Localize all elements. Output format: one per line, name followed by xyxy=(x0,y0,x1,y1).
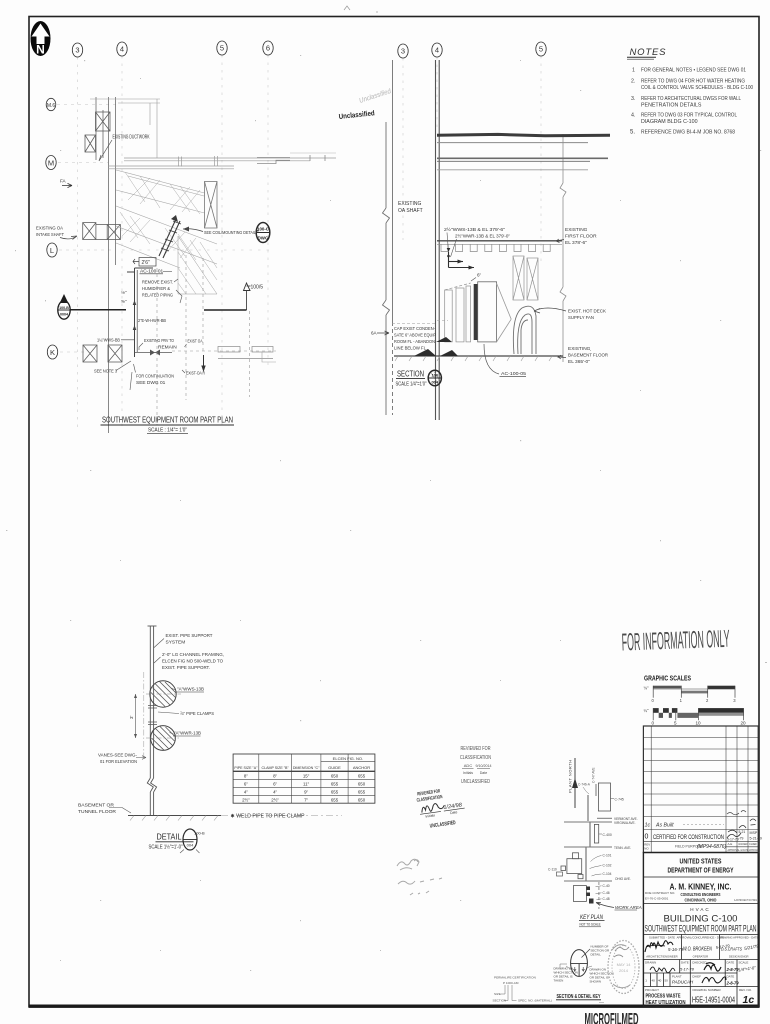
svg-text:A-E: A-E xyxy=(728,842,733,846)
svg-text:SCALE 1½"=1'-0": SCALE 1½"=1'-0" xyxy=(149,844,183,851)
svg-text:650: 650 xyxy=(331,774,339,779)
svg-text:PADUCAH: PADUCAH xyxy=(672,980,694,985)
svg-text:PLANT NORTH: PLANT NORTH xyxy=(568,759,573,793)
svg-text:40: 40 xyxy=(652,979,656,983)
svg-text:100/5: 100/5 xyxy=(251,285,264,291)
svg-text:3: 3 xyxy=(75,46,79,55)
svg-text:50: 50 xyxy=(665,979,669,983)
svg-text:SYSTEM: SYSTEM xyxy=(166,640,186,646)
svg-text:PERMALIFE CERTIFICATION: PERMALIFE CERTIFICATION xyxy=(494,976,536,980)
svg-text:DRAWING APPROVED - DATE: DRAWING APPROVED - DATE xyxy=(719,936,758,940)
svg-text:K: K xyxy=(50,348,55,357)
svg-text:CONSULTING ENGINEERS: CONSULTING ENGINEERS xyxy=(681,892,721,897)
svg-text:655: 655 xyxy=(331,790,339,795)
svg-text:5.: 5. xyxy=(630,129,635,135)
svg-text:NOTES: NOTES xyxy=(630,47,667,58)
svg-text:ADC: ADC xyxy=(464,763,473,768)
svg-text:REMAIN: REMAIN xyxy=(158,345,177,351)
svg-text:REFER TO DWG 03 FOR TYPICAL CO: REFER TO DWG 03 FOR TYPICAL CONTROL xyxy=(641,113,737,119)
svg-text:C-40: C-40 xyxy=(603,884,610,888)
svg-text:⅛": ⅛" xyxy=(121,290,127,295)
svg-text:DEPARTMENT OF ENERGY: DEPARTMENT OF ENERGY xyxy=(668,866,734,875)
svg-text:40: 40 xyxy=(658,979,662,983)
svg-text:C-48: C-48 xyxy=(603,897,610,901)
svg-text:SCALE 1/4"=1'0": SCALE 1/4"=1'0" xyxy=(396,381,427,387)
svg-text:PROCESS WASTE: PROCESS WASTE xyxy=(646,994,681,1000)
svg-text:HEAT UTILIZATION: HEAT UTILIZATION xyxy=(646,1000,686,1006)
svg-text:C-110: C-110 xyxy=(548,868,557,872)
svg-text:-79: -79 xyxy=(739,837,744,841)
svg-text:SIZE: SIZE xyxy=(494,992,501,996)
svg-text:655: 655 xyxy=(358,774,366,779)
svg-text:EY-76-C-05-0001: EY-76-C-05-0001 xyxy=(645,897,669,901)
svg-text:VANES-SEE DWG-: VANES-SEE DWG- xyxy=(98,753,137,758)
svg-text:ROOM FL - ABANDON: ROOM FL - ABANDON xyxy=(394,339,435,345)
svg-text:SOUTHWEST EQUIPMENT ROOM PART: SOUTHWEST EQUIPMENT ROOM PART PLAN xyxy=(102,415,233,425)
svg-text:REVIEWED FOR: REVIEWED FOR xyxy=(461,746,491,752)
svg-text:C-400: C-400 xyxy=(603,833,612,837)
svg-text:100-B: 100-B xyxy=(194,831,205,836)
svg-text:FOR CONTINUATION: FOR CONTINUATION xyxy=(136,374,174,380)
svg-text:C-101: C-101 xyxy=(603,854,612,858)
svg-text:P 1000-AM: P 1000-AM xyxy=(503,981,519,985)
svg-text:10: 10 xyxy=(696,721,702,726)
svg-text:MICROFILMED: MICROFILMED xyxy=(585,1011,639,1024)
svg-text:5-17-79: 5-17-79 xyxy=(727,838,739,842)
svg-text:AC-100-05: AC-100-05 xyxy=(501,371,526,377)
svg-text:M: M xyxy=(48,158,54,167)
svg-text:PROJECT: PROJECT xyxy=(645,988,659,992)
svg-text:✱ WELD PIPE TO PIPE CLAMP: ✱ WELD PIPE TO PIPE CLAMP xyxy=(231,814,306,820)
svg-text:DATE: DATE xyxy=(681,961,689,965)
svg-text:C-46: C-46 xyxy=(603,891,610,895)
svg-text:"A"WWS-13B: "A"WWS-13B xyxy=(177,687,204,693)
svg-text:ELCEN FIG NO 500-WELD TO: ELCEN FIG NO 500-WELD TO xyxy=(162,659,223,665)
svg-text:4: 4 xyxy=(120,45,124,54)
svg-text:004: 004 xyxy=(431,380,438,385)
svg-text:TUNNEL FLOOR: TUNNEL FLOOR xyxy=(78,809,117,815)
svg-text:DETAIL: DETAIL xyxy=(157,833,183,842)
svg-text:CLAMP SIZE "B": CLAMP SIZE "B" xyxy=(261,766,289,770)
svg-text:⅝": ⅝" xyxy=(121,299,127,304)
svg-text:W.O. BROKEEN: W.O. BROKEEN xyxy=(683,947,712,953)
svg-text:1c: 1c xyxy=(743,994,755,1006)
svg-text:6": 6" xyxy=(477,273,482,278)
svg-text:As Built: As Built xyxy=(655,823,674,829)
svg-text:EXISTING: EXISTING xyxy=(568,346,591,352)
svg-text:ANCHOR: ANCHOR xyxy=(353,765,370,770)
svg-text:0: 0 xyxy=(652,721,655,726)
svg-text:5: 5 xyxy=(539,45,543,54)
svg-text:EXIST. PIPE SUPPORT.: EXIST. PIPE SUPPORT. xyxy=(162,665,210,671)
svg-text:CHECKED: CHECKED xyxy=(692,961,708,965)
svg-text:100-B: 100-B xyxy=(59,306,69,310)
svg-text:2014: 2014 xyxy=(619,968,629,973)
svg-text:DESIGN ENGR: DESIGN ENGR xyxy=(729,955,749,959)
svg-text:REMOVE EXIST.: REMOVE EXIST. xyxy=(142,280,173,286)
svg-text:PIPE SIZE "A": PIPE SIZE "A" xyxy=(234,766,258,770)
svg-text:CHIEF: CHIEF xyxy=(749,842,757,846)
svg-text:CERTIFIED FOR CONSTRUCTION: CERTIFIED FOR CONSTRUCTION xyxy=(653,834,724,841)
svg-text:A-M PROJECT NO 5901: A-M PROJECT NO 5901 xyxy=(734,898,757,902)
svg-text:8": 8" xyxy=(244,774,248,779)
svg-text:9/10/2014: 9/10/2014 xyxy=(476,764,492,768)
svg-text:SOUTHWEST EQUIPMENT ROOM PART: SOUTHWEST EQUIPMENT ROOM PART PLAN xyxy=(645,924,757,934)
svg-text:OA SHAFT: OA SHAFT xyxy=(398,208,423,214)
svg-text:2½"WWR-13B & EL 379'-0": 2½"WWR-13B & EL 379'-0" xyxy=(455,233,510,240)
svg-text:DOE CONTRACT NO.: DOE CONTRACT NO. xyxy=(645,891,675,895)
svg-text:EXIST-OA R: EXIST-OA R xyxy=(186,371,205,377)
svg-text:SECTION: SECTION xyxy=(397,369,424,379)
svg-text:DRAWING NUMBER: DRAWING NUMBER xyxy=(693,988,722,992)
svg-text:H5E-14951-0004: H5E-14951-0004 xyxy=(692,996,735,1005)
svg-text:(MP94-6876): (MP94-6876) xyxy=(697,844,727,850)
svg-text:2½": 2½" xyxy=(271,797,279,802)
svg-text:6": 6" xyxy=(244,782,248,787)
svg-text:5: 5 xyxy=(220,44,224,53)
svg-text:⅞" PIPE CLAMPS: ⅞" PIPE CLAMPS xyxy=(180,711,214,717)
svg-text:"A"WWR-13B: "A"WWR-13B xyxy=(174,731,201,737)
svg-text:EXIST OA: EXIST OA xyxy=(188,339,204,345)
svg-text:EXISTING: EXISTING xyxy=(565,227,588,233)
svg-text:650: 650 xyxy=(358,797,366,802)
svg-text:5-17-78: 5-17-78 xyxy=(680,967,695,972)
svg-text:REV. NO.: REV. NO. xyxy=(739,988,752,992)
svg-text:2'-0" LG CHANNEL FRAMING,: 2'-0" LG CHANNEL FRAMING, xyxy=(162,652,224,658)
svg-text:4: 4 xyxy=(435,46,439,55)
svg-text:SECTION & DETAIL KEY: SECTION & DETAIL KEY xyxy=(557,994,601,1000)
svg-text:15": 15" xyxy=(303,774,310,779)
svg-text:1: 1 xyxy=(632,68,635,74)
svg-text:C-746-A: C-746-A xyxy=(578,783,591,787)
svg-text:REFERENCE DWG BI-4-M JOB NO: REFERENCE DWG BI-4-M JOB NO. 8768 xyxy=(641,129,735,135)
svg-text:ENGINEER: ENGINEER xyxy=(739,842,748,846)
svg-text:Date: Date xyxy=(480,771,488,775)
svg-text:004: 004 xyxy=(187,843,194,848)
svg-text:REFER TO ARCHITECTURAL DWGS FO: REFER TO ARCHITECTURAL DWGS FOR WALL xyxy=(641,96,741,102)
svg-text:20: 20 xyxy=(741,721,747,726)
svg-text:DWG: DWG xyxy=(258,236,269,241)
svg-text:EXISTING: EXISTING xyxy=(398,201,421,207)
svg-text:BASEMENT FLOOR: BASEMENT FLOOR xyxy=(568,353,608,359)
svg-text:CHIEF: CHIEF xyxy=(692,975,701,979)
svg-text:4": 4" xyxy=(273,790,277,795)
svg-text:5-16-79: 5-16-79 xyxy=(668,947,684,952)
svg-text:3: 3 xyxy=(401,47,405,56)
svg-text:4.: 4. xyxy=(631,113,635,119)
svg-text:WORK AREA: WORK AREA xyxy=(615,905,642,910)
svg-text:CINCINNATI, OHIO: CINCINNATI, OHIO xyxy=(685,898,718,903)
svg-text:DRAWN: DRAWN xyxy=(645,961,656,965)
svg-text:¼": ¼" xyxy=(644,708,649,713)
svg-text:0: 0 xyxy=(645,834,649,841)
svg-text:CLASSIFICATION: CLASSIFICATION xyxy=(460,755,491,761)
svg-text:EXISTING PRV TO: EXISTING PRV TO xyxy=(144,338,174,344)
svg-text:2'6": 2'6" xyxy=(142,260,151,266)
svg-text:SCALE: SCALE xyxy=(739,961,749,965)
svg-text:TENN. AVE.: TENN. AVE. xyxy=(614,846,631,850)
svg-text:GUIDE: GUIDE xyxy=(328,765,341,770)
svg-text:SEE DWG 01: SEE DWG 01 xyxy=(136,380,166,386)
svg-text:KEY PLAN: KEY PLAN xyxy=(580,915,604,921)
svg-text:SEE COIL/MOUNTING DETAIL: SEE COIL/MOUNTING DETAIL xyxy=(204,230,256,236)
svg-text:D.S.CRAFTS: D.S.CRAFTS xyxy=(721,947,743,952)
svg-text:PLANT: PLANT xyxy=(672,975,682,979)
svg-text:FOR GENERAL NOTES • LEGEND SEE: FOR GENERAL NOTES • LEGEND SEE DWG 01 xyxy=(641,68,746,74)
svg-text:C-745: C-745 xyxy=(615,798,624,802)
svg-text:SPEC. NO. (MATERIAL): SPEC. NO. (MATERIAL) xyxy=(518,999,552,1003)
svg-text:5: 5 xyxy=(674,721,677,726)
svg-text:EXISTING OA: EXISTING OA xyxy=(36,226,64,232)
svg-text:EXIST. HOT DECK: EXIST. HOT DECK xyxy=(568,309,607,315)
svg-text:FA: FA xyxy=(60,179,67,184)
svg-text:SEE NOTE 3: SEE NOTE 3 xyxy=(94,369,117,375)
svg-text:REFER TO DWG 04 FOR HOT WATER: REFER TO DWG 04 FOR HOT WATER HEATING xyxy=(641,79,745,85)
svg-text:SATE 6" ABOVE EQUIP: SATE 6" ABOVE EQUIP xyxy=(394,333,436,339)
svg-text:100-C: 100-C xyxy=(257,227,270,232)
svg-text:650: 650 xyxy=(358,782,366,787)
svg-text:APPROVAL/CONCURRENCE - DATE: APPROVAL/CONCURRENCE - DATE xyxy=(677,936,725,940)
svg-text:EXISTING DUCTWORK: EXISTING DUCTWORK xyxy=(113,135,150,141)
svg-text:2½": 2½" xyxy=(242,797,250,802)
svg-text:C-102: C-102 xyxy=(603,864,612,868)
svg-text:SCALE : 1/4"= 1'0": SCALE : 1/4"= 1'0" xyxy=(148,428,187,434)
svg-text:MSP: MSP xyxy=(750,831,758,835)
svg-text:2½"WWS-13B & EL 379'-6": 2½"WWS-13B & EL 379'-6" xyxy=(444,226,505,233)
svg-text:4": 4" xyxy=(244,790,248,795)
svg-text:N: N xyxy=(36,43,45,57)
svg-text:HVAC: HVAC xyxy=(690,907,710,912)
svg-text:BUILDING C-100: BUILDING C-100 xyxy=(664,914,738,924)
svg-text:COIL & CONTROL VALVE SCHEDULES: COIL & CONTROL VALVE SCHEDULES - BLDG C-… xyxy=(641,85,753,91)
svg-text:2-8-79: 2-8-79 xyxy=(726,981,740,986)
svg-text:RELATED PIPING: RELATED PIPING xyxy=(142,293,173,299)
svg-text:APPROVAL: APPROVAL xyxy=(749,848,758,852)
svg-text:6": 6" xyxy=(273,782,277,787)
svg-text:A. M. KINNEY, INC.: A. M. KINNEY, INC. xyxy=(670,883,732,892)
svg-text:DIAGRAM BLDG C-100: DIAGRAM BLDG C-100 xyxy=(641,119,698,125)
svg-text:GRAPHIC SCALES: GRAPHIC SCALES xyxy=(644,674,691,683)
svg-text:MAY 14: MAY 14 xyxy=(617,962,632,967)
svg-text:8": 8" xyxy=(273,774,277,779)
svg-text:01 FOR ELEVATION: 01 FOR ELEVATION xyxy=(100,759,137,764)
svg-text:HUMIDIFIER &: HUMIDIFIER & xyxy=(142,286,171,292)
svg-text:OHIO AVE.: OHIO AVE. xyxy=(615,877,631,881)
svg-text:1c: 1c xyxy=(645,823,651,829)
svg-text:655: 655 xyxy=(331,782,339,787)
svg-text:VIRGINIA AVE.: VIRGINIA AVE. xyxy=(614,821,636,825)
svg-text:EL 378'-6": EL 378'-6" xyxy=(565,240,587,246)
svg-text:NO: NO xyxy=(644,847,649,851)
svg-text:655: 655 xyxy=(358,790,366,795)
svg-text:DIMENSION "C": DIMENSION "C" xyxy=(293,766,320,770)
svg-text:DATE: DATE xyxy=(727,975,735,979)
svg-text:LINE BELOW FL: LINE BELOW FL xyxy=(394,346,426,352)
svg-text:DATE: DATE xyxy=(727,961,735,965)
svg-text:SUBMITTED - DATE: SUBMITTED - DATE xyxy=(649,936,675,940)
svg-text:6A: 6A xyxy=(371,331,378,336)
svg-text:NOT TO SCALE: NOT TO SCALE xyxy=(580,923,601,927)
svg-text:DETAIL: DETAIL xyxy=(591,953,602,957)
svg-text:SHOWN: SHOWN xyxy=(590,980,602,984)
svg-text:3.: 3. xyxy=(631,96,635,102)
svg-text:APPROVAL & DATE: APPROVAL & DATE xyxy=(728,848,749,852)
svg-text:AC-100-01: AC-100-01 xyxy=(140,268,164,274)
svg-text:FIRST FLOOR: FIRST FLOOR xyxy=(565,234,597,240)
svg-text:L: L xyxy=(50,246,54,255)
svg-text:C-104: C-104 xyxy=(603,872,612,876)
svg-text:655: 655 xyxy=(331,797,339,802)
svg-text:TAKEN: TAKEN xyxy=(554,979,564,983)
svg-text:UNCLASSIFIED: UNCLASSIFIED xyxy=(461,779,490,785)
svg-text:11": 11" xyxy=(303,782,310,787)
svg-text:Initials: Initials xyxy=(463,771,473,775)
svg-text:PENETRATION DETAILS: PENETRATION DETAILS xyxy=(641,102,702,108)
svg-text:2.: 2. xyxy=(631,79,635,85)
svg-text:EXIST. PIPE SUPPORT: EXIST. PIPE SUPPORT xyxy=(166,633,213,639)
svg-text:7": 7" xyxy=(304,797,308,802)
svg-text:5-21-79: 5-21-79 xyxy=(750,837,762,841)
svg-text:FOR INFORMATION ONLY: FOR INFORMATION ONLY xyxy=(621,626,730,657)
svg-text:UNITED STATES: UNITED STATES xyxy=(680,857,722,866)
svg-text:ARCHITECT/ENGINEER: ARCHITECT/ENGINEER xyxy=(646,955,677,959)
svg-text:OPERATOR: OPERATOR xyxy=(693,955,708,959)
svg-text:INTAKE SHAFT: INTAKE SHAFT xyxy=(36,232,64,238)
svg-text:100: 100 xyxy=(431,373,438,378)
svg-text:0004: 0004 xyxy=(60,313,68,317)
svg-text:SUPPLY FAN: SUPPLY FAN xyxy=(568,315,594,321)
svg-text:5-21: 5-21 xyxy=(739,830,746,834)
svg-text:C-747 AVE: C-747 AVE xyxy=(592,767,596,783)
svg-text:2"E-W-HWR-BB: 2"E-W-HWR-BB xyxy=(138,318,166,324)
svg-text:6: 6 xyxy=(266,44,270,53)
svg-text:1¼"WWS-BB: 1¼"WWS-BB xyxy=(97,338,120,344)
svg-text:CAP EXIST CONDEN-: CAP EXIST CONDEN- xyxy=(394,326,435,332)
svg-text:EL 365'-0": EL 365'-0" xyxy=(568,359,590,365)
svg-text:⅛": ⅛" xyxy=(644,686,649,691)
svg-text:M.6: M.6 xyxy=(47,103,56,109)
svg-text:3': 3' xyxy=(129,716,134,719)
svg-text:9": 9" xyxy=(304,790,308,795)
svg-text:ELCEN FIG. NO.: ELCEN FIG. NO. xyxy=(333,756,363,761)
